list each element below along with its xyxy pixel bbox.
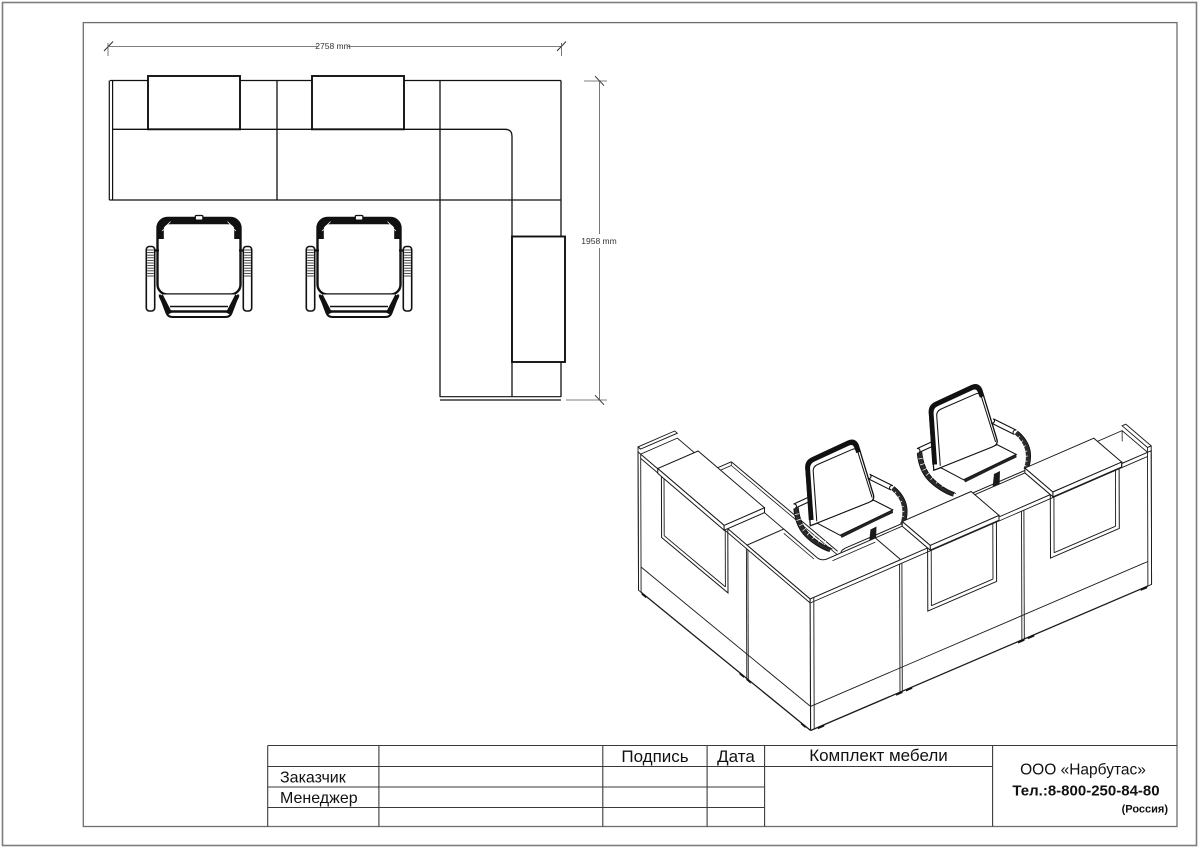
svg-text:2758 mm: 2758 mm bbox=[315, 41, 350, 51]
svg-text:Комплект мебели: Комплект мебели bbox=[809, 746, 948, 765]
svg-text:Заказчик: Заказчик bbox=[280, 770, 347, 787]
svg-text:Тел.:8-800-250-84-80: Тел.:8-800-250-84-80 bbox=[1012, 783, 1159, 800]
svg-text:ООО «Нарбутас»: ООО «Нарбутас» bbox=[1020, 762, 1146, 779]
svg-text:Менеджер: Менеджер bbox=[280, 790, 358, 807]
svg-text:Подпись: Подпись bbox=[621, 747, 688, 766]
svg-text:(Россия): (Россия) bbox=[1122, 804, 1169, 816]
svg-text:Дата: Дата bbox=[717, 747, 755, 766]
svg-text:1958 mm: 1958 mm bbox=[581, 236, 616, 246]
